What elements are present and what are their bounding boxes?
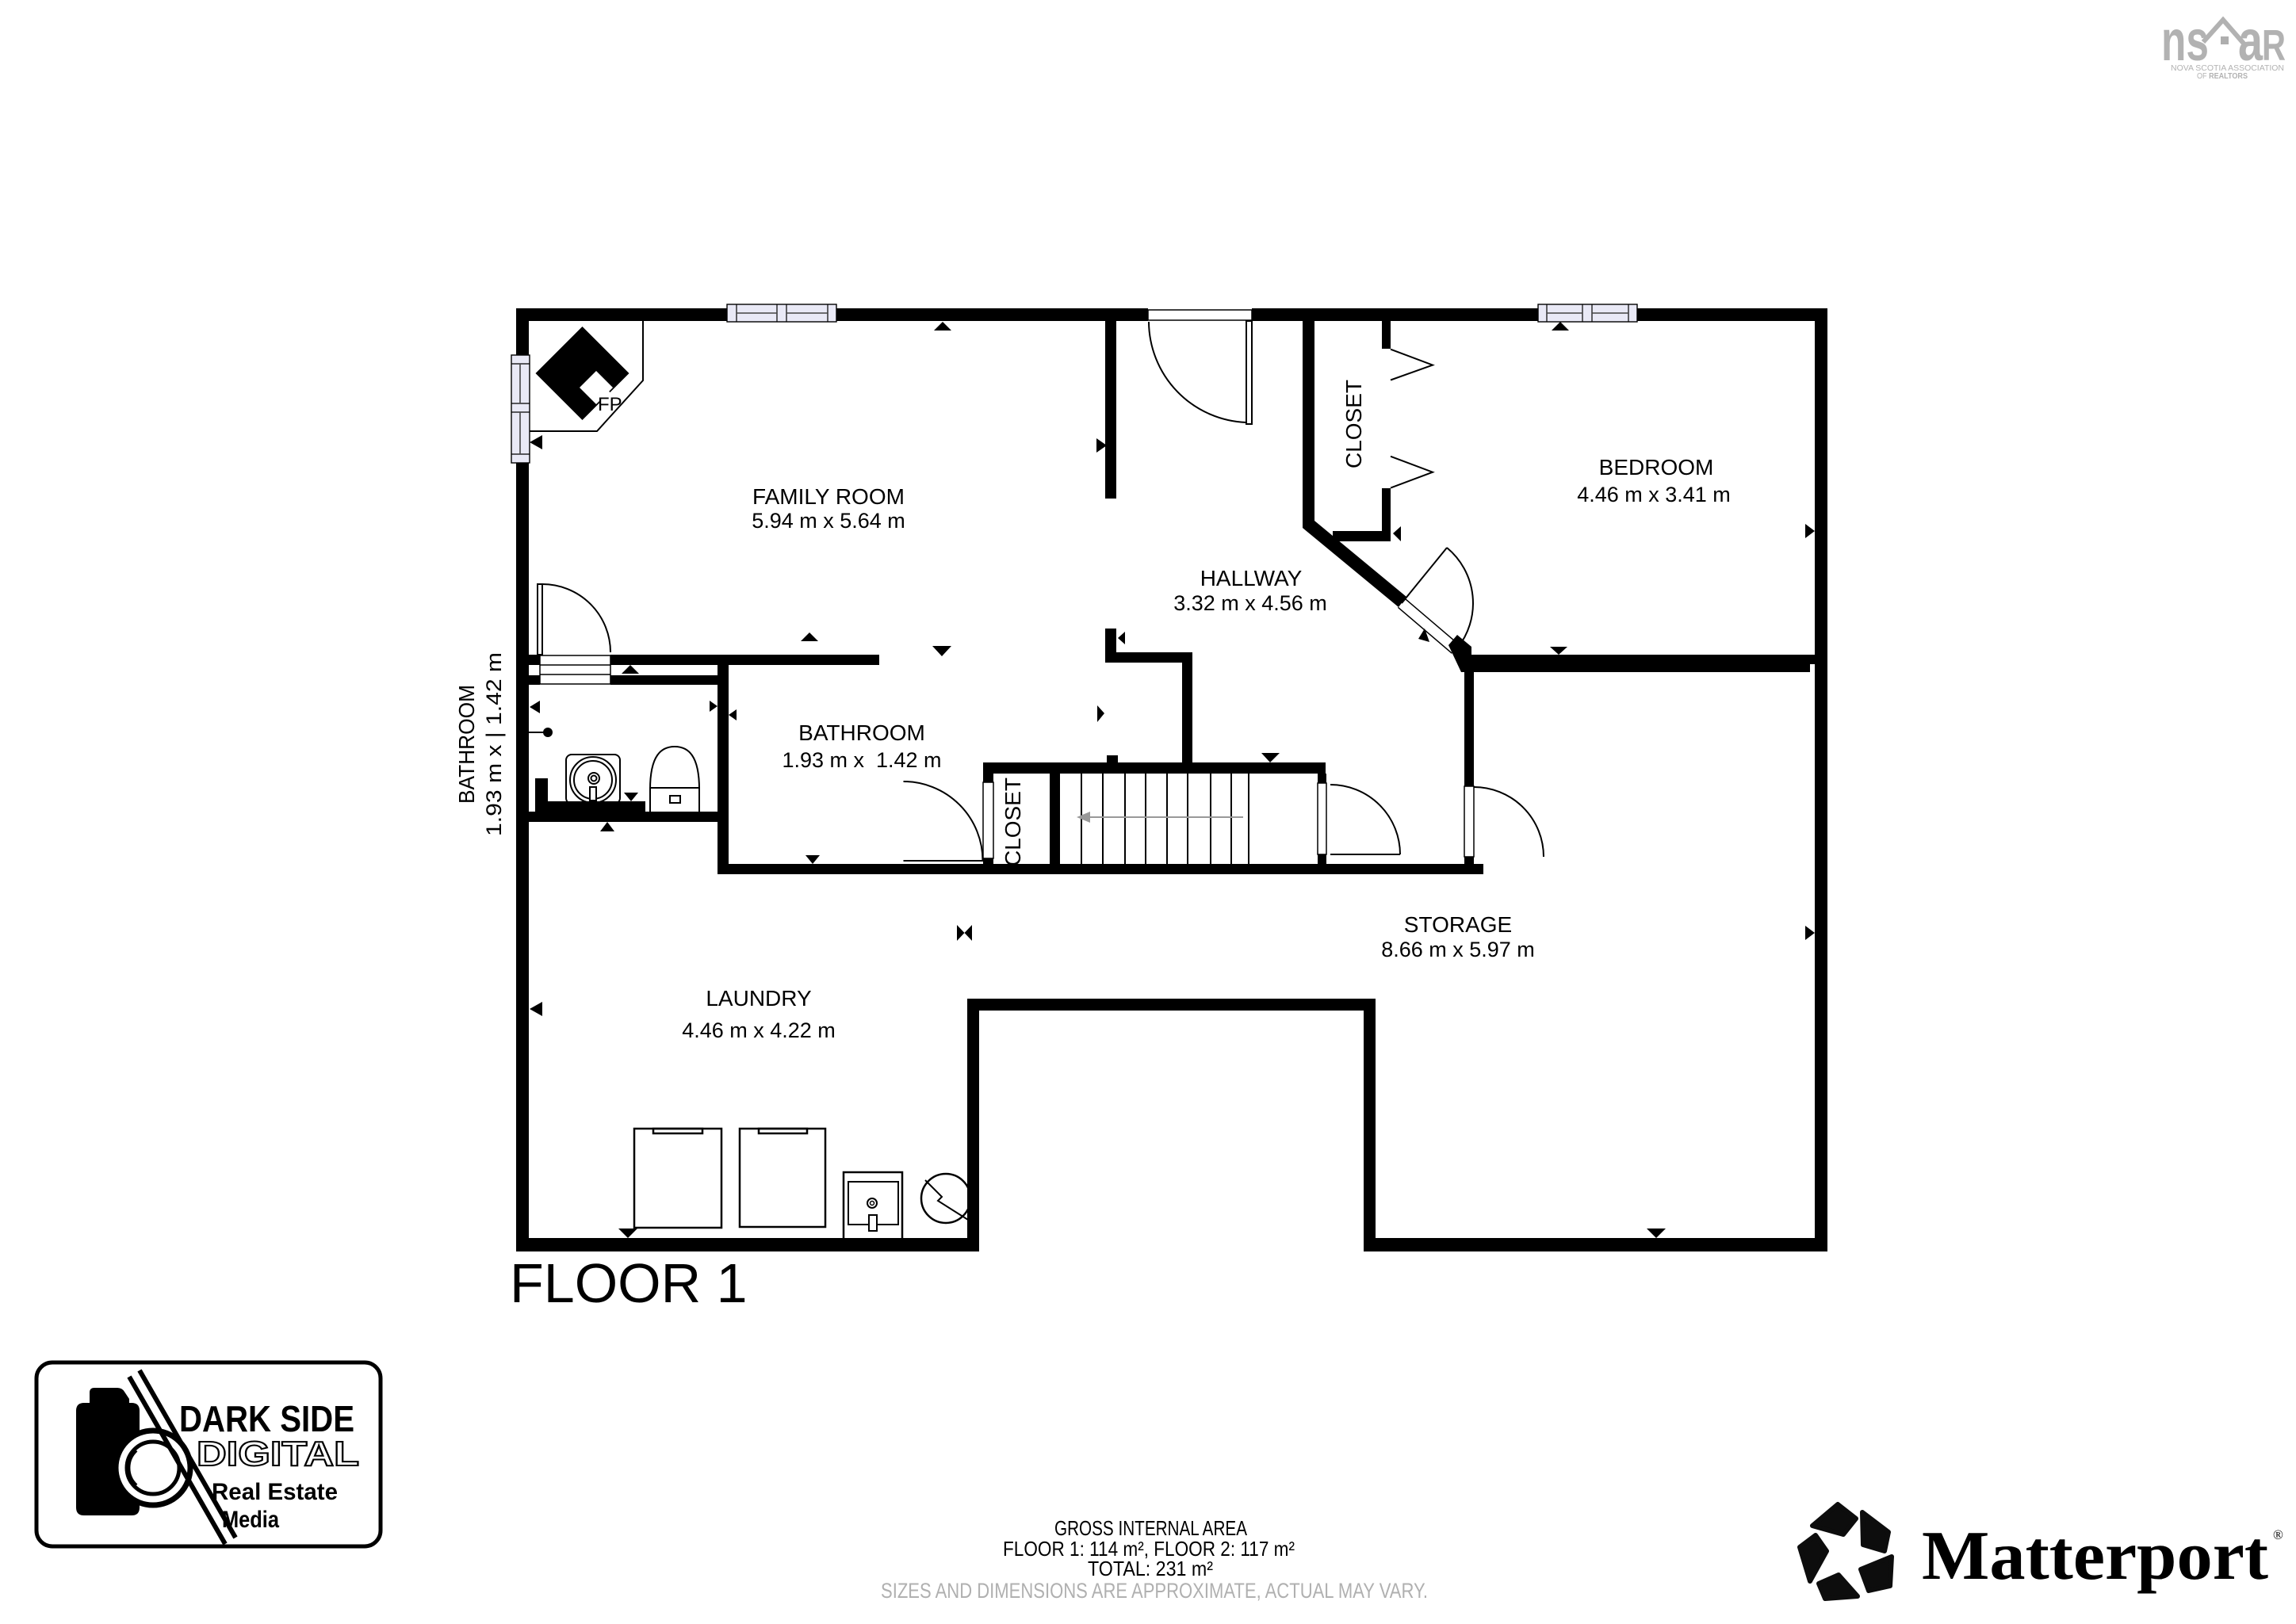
svg-text:4.46 m x 4.22 m: 4.46 m x 4.22 m: [682, 1018, 836, 1042]
svg-text:1.93 m x | 1.42 m: 1.93 m x | 1.42 m: [482, 652, 506, 836]
svg-text:CLOSET: CLOSET: [1341, 380, 1366, 468]
svg-text:DIGITAL: DIGITAL: [197, 1435, 359, 1473]
svg-text:HALLWAY: HALLWAY: [1200, 566, 1303, 590]
svg-text:BATHROOM: BATHROOM: [798, 720, 925, 745]
svg-text:5.94 m x 5.64 m: 5.94 m x 5.64 m: [752, 509, 905, 533]
svg-text:3.32 m x 4.56 m: 3.32 m x 4.56 m: [1173, 591, 1327, 615]
svg-text:FAMILY ROOM: FAMILY ROOM: [752, 484, 905, 509]
svg-text:4.46 m x 3.41 m: 4.46 m x 3.41 m: [1577, 483, 1731, 506]
svg-text:OF REALTORS: OF REALTORS: [2197, 72, 2248, 81]
svg-text:FLOOR 1: FLOOR 1: [510, 1252, 748, 1314]
svg-text:TOTAL: 231 m²: TOTAL: 231 m²: [1088, 1557, 1213, 1580]
svg-text:SIZES AND DIMENSIONS ARE APPRO: SIZES AND DIMENSIONS ARE APPROXIMATE, AC…: [881, 1579, 1428, 1603]
svg-text:LAUNDRY: LAUNDRY: [706, 986, 812, 1011]
svg-text:BATHROOM: BATHROOM: [454, 685, 479, 804]
svg-text:R: R: [2262, 21, 2286, 70]
svg-text:ns: ns: [2161, 10, 2209, 73]
svg-text:BEDROOM: BEDROOM: [1599, 455, 1714, 480]
svg-text:FP: FP: [598, 394, 622, 415]
svg-text:STORAGE: STORAGE: [1404, 912, 1512, 937]
svg-text:8.66 m x 5.97 m: 8.66 m x 5.97 m: [1381, 938, 1535, 961]
svg-text:Media: Media: [222, 1507, 279, 1533]
svg-text:Real Estate: Real Estate: [212, 1479, 338, 1505]
svg-text:Matterport: Matterport: [1922, 1518, 2268, 1595]
svg-text:1.93 m x 1.42 m: 1.93 m x 1.42 m: [782, 748, 941, 772]
svg-text:DARK SIDE: DARK SIDE: [179, 1398, 354, 1439]
svg-text:®: ®: [2273, 1527, 2283, 1542]
svg-text:CLOSET: CLOSET: [1001, 778, 1025, 866]
